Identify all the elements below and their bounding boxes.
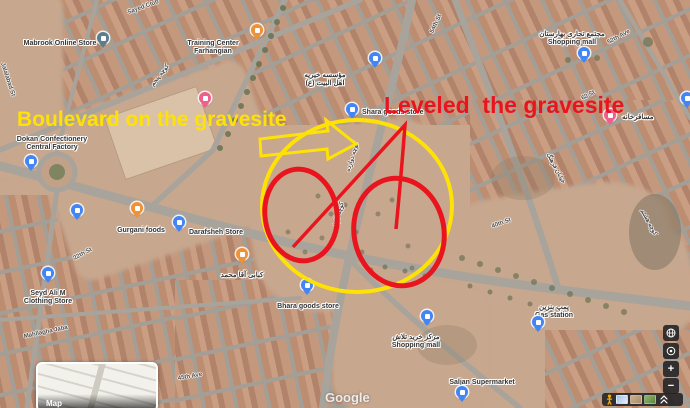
poi-label-line: Bhara goods store <box>277 303 339 311</box>
pin-tip <box>44 278 52 287</box>
imagery-thumbnail-map[interactable] <box>616 395 628 404</box>
gurgani-label[interactable]: Gurgani foods <box>117 227 165 235</box>
street-northeast <box>620 0 690 118</box>
poi-label-line: Mabrook Online Store <box>24 40 97 48</box>
bhara-goods-store-pin[interactable] <box>301 279 313 299</box>
pin-tip <box>253 35 261 44</box>
zoom-in-button[interactable]: + <box>663 361 679 377</box>
pin-glyph <box>75 208 80 213</box>
pin-tip <box>458 397 466 406</box>
poi-label-line: Gurgani foods <box>117 227 165 235</box>
talash-mall-pin[interactable] <box>421 310 433 330</box>
pin-glyph <box>135 206 140 211</box>
poi-label-line: مسافرخانه <box>622 114 654 122</box>
poi-label-line: کبابی آقا محمد <box>221 272 264 280</box>
map-type-label: Map <box>46 399 62 408</box>
zoom-in-label: + <box>668 364 674 375</box>
compass-icon <box>666 346 676 356</box>
pin-tip <box>534 327 542 336</box>
globe-icon <box>666 328 676 338</box>
guesthouse-label[interactable]: مسافرخانه <box>622 114 654 122</box>
pin-tip <box>580 58 588 67</box>
seyd-ali-clothing-pin[interactable] <box>42 267 54 287</box>
poi-label-line: اهل البیت (ع) <box>304 80 345 88</box>
pin-glyph <box>685 96 690 101</box>
dokan-label[interactable]: Dokan ConfectioneryCentral Factory <box>17 136 87 153</box>
globe-button[interactable] <box>663 325 679 341</box>
training-center-label[interactable]: Training CenterFarhangian <box>187 40 238 57</box>
shara-goods-store-pin[interactable] <box>346 103 358 123</box>
roundabout-green <box>49 164 65 180</box>
compass-button[interactable] <box>663 343 679 359</box>
darafsheh-label[interactable]: Darafsheh Store <box>189 229 243 237</box>
talash-label[interactable]: مرکز خرید تلاشShopping mall <box>392 334 440 351</box>
poi-label-line: Shopping mall <box>539 39 604 47</box>
pin-glyph <box>460 390 465 395</box>
saljan-supermarket-pin[interactable] <box>456 386 468 406</box>
kebab-shop-pin[interactable] <box>236 248 248 268</box>
pin-tip <box>238 259 246 268</box>
pin-glyph <box>29 159 34 164</box>
imagery-thumbnail-satellite[interactable] <box>630 395 642 404</box>
pin-glyph <box>582 51 587 56</box>
pin-tip <box>133 213 141 222</box>
imagery-thumbnail-terrain[interactable] <box>644 395 656 404</box>
pin-glyph <box>350 107 355 112</box>
pin-glyph <box>240 252 245 257</box>
google-logo[interactable]: Google <box>325 390 370 405</box>
poi-label-line: Shopping mall <box>392 342 440 350</box>
pin-tip <box>175 227 183 236</box>
pin-tip <box>423 321 431 330</box>
dokan-confectionery-pin[interactable] <box>25 155 37 175</box>
restaurant-north-pin[interactable] <box>251 24 263 44</box>
pin-tip <box>99 43 107 52</box>
satellite-map-view[interactable]: Sayed ClubJalalabad Stکوچه پنجم54th St52… <box>0 0 690 408</box>
institute-label[interactable]: مؤسسه خیریهاهل البیت (ع) <box>304 72 345 89</box>
institute-pin[interactable] <box>369 52 381 72</box>
pegman-icon[interactable] <box>605 394 614 405</box>
pin-glyph <box>101 36 106 41</box>
leveled-annotation-text: Leveled the gravesite <box>384 92 624 119</box>
pin-glyph <box>46 271 51 276</box>
imagery-bar <box>602 393 683 406</box>
kebab-label[interactable]: کبابی آقا محمد <box>221 272 264 280</box>
pin-glyph <box>203 96 208 101</box>
pin-tip <box>606 120 614 129</box>
elbassam-label[interactable]: مجتمع تجاری بهارستانShopping mall <box>539 31 604 48</box>
pin-glyph <box>536 320 541 325</box>
mabrook-label[interactable]: Mabrook Online Store <box>24 40 97 48</box>
poi-label-line: Central Factory <box>17 144 87 152</box>
dirt-shade-patch <box>491 156 555 200</box>
bhara-label[interactable]: Bhara goods store <box>277 303 339 311</box>
pin-glyph <box>425 314 430 319</box>
pin-tip <box>683 103 690 112</box>
collapse-icon[interactable] <box>659 394 669 405</box>
map-type-button[interactable]: Map <box>36 362 158 408</box>
zoom-out-label: − <box>668 381 674 392</box>
boulevard-annotation-text: Boulevard on the gravesite <box>17 108 287 132</box>
pin-glyph <box>305 283 310 288</box>
pin-tip <box>348 114 356 123</box>
pin-glyph <box>255 28 260 33</box>
seyd-ali-label[interactable]: Seyd Ali MClothing Store <box>24 290 72 307</box>
pin-glyph <box>177 220 182 225</box>
tree-lined-boulevard-road <box>152 0 285 206</box>
pin-tip <box>73 215 81 224</box>
pin-tip <box>27 166 35 175</box>
poi-label-line: Farhangian <box>187 48 238 56</box>
pin-glyph <box>373 56 378 61</box>
pin-tip <box>371 63 379 72</box>
mabrook-online-store-pin[interactable] <box>97 32 109 52</box>
shop-west-pin[interactable] <box>71 204 83 224</box>
shop-east-edge-pin[interactable] <box>681 92 690 112</box>
darafsheh-store-pin[interactable] <box>173 216 185 236</box>
pin-tip <box>303 290 311 299</box>
gas-station-pin[interactable] <box>532 316 544 336</box>
poi-label-line: Darafsheh Store <box>189 229 243 237</box>
poi-label-line: Clothing Store <box>24 298 72 306</box>
zoom-out-button[interactable]: − <box>663 378 679 394</box>
gurgani-foods-pin[interactable] <box>131 202 143 222</box>
elbassam-mall-pin[interactable] <box>578 47 590 67</box>
